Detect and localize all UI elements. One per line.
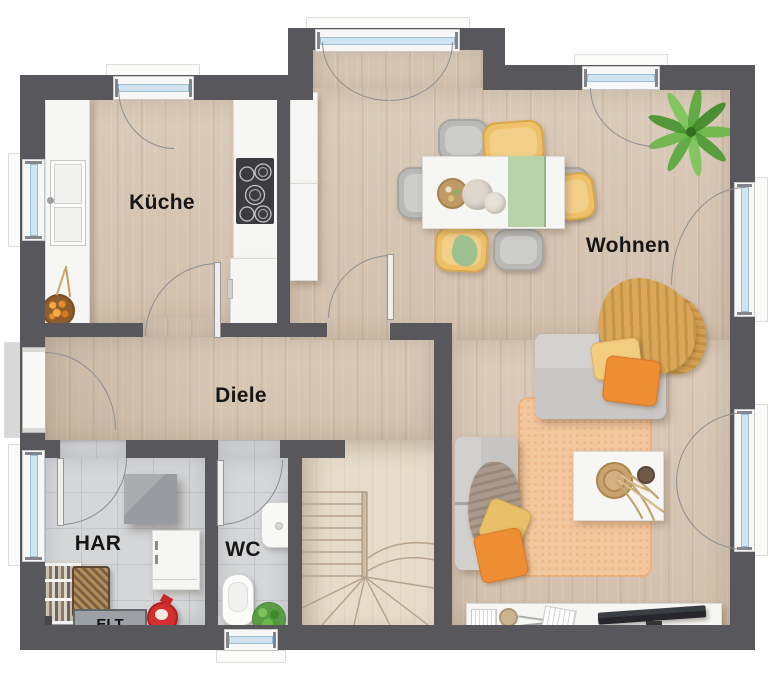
tall-cabinet-upper [290,92,318,185]
living-window-top [582,66,660,90]
washer-door-seam [153,579,197,580]
rack-bar-2 [43,598,72,601]
fridge [230,258,279,328]
room-label-kueche: Küche [129,191,195,215]
fridge-handle [227,279,233,299]
wall-outer-bottom [20,625,755,650]
toilet-seat [228,582,248,612]
sink-basin-bottom [54,207,82,242]
pillow-orange [472,527,529,585]
wall-outer-right [730,65,755,650]
wall-kitchen-right [277,88,290,337]
basin-drain [275,522,283,530]
window-sill [753,177,768,322]
kitchen-sink [50,160,86,246]
bucket-contents [155,609,168,620]
sink-faucet [47,197,54,204]
wall-stairs-right [434,330,452,625]
washer-control [155,541,158,550]
wc-window [224,629,278,651]
floor-plan: ELT [0,0,775,676]
wall-kitchen-hall-b [218,323,327,337]
kitchen-door-leaf [214,262,221,338]
wc-door-leaf [217,460,224,526]
table-runner [508,156,546,227]
utility-window-left [22,450,45,562]
cooktop [236,158,274,224]
pillow-orange [601,355,661,407]
water-heater [124,474,177,524]
rack-bar [43,579,72,582]
utility-door-leaf [57,458,64,526]
palm-plant [643,86,739,178]
room-label-diele: Diele [215,384,267,408]
utility-door-threshold [60,440,126,458]
room-label-wc: WC [225,538,261,562]
toilet [222,574,254,626]
sink-basin-top [54,164,82,204]
staircase-treads [302,440,434,625]
wall-har-top-a [45,440,60,458]
wall-wc-stairs-divider [288,440,302,625]
table-flowers-2 [484,192,506,214]
kitchen-window-left [22,159,45,241]
dining-chair-gray [493,229,544,271]
room-label-har: HAR [75,532,121,556]
tall-cabinet-lower [290,183,318,281]
room-label-wohnen: Wohnen [586,234,670,258]
wc-door-threshold [218,440,280,458]
entrance-door [22,347,46,433]
washing-machine [152,530,200,590]
washer-control-2 [155,555,158,564]
living-door-leaf [387,254,394,320]
window-sill [753,404,768,556]
decor-vase [637,466,655,484]
wall-kitchen-hall-a [45,323,143,337]
window-sill [216,650,286,663]
